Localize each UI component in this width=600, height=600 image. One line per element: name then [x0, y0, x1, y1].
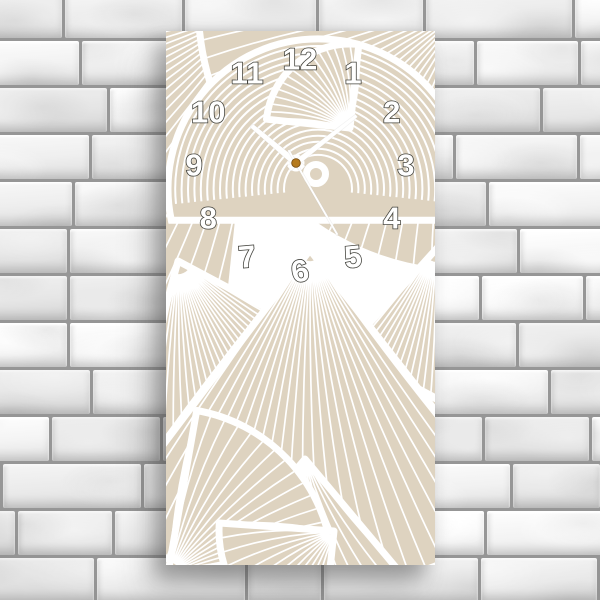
- wall-clock-panel: 121234567891011: [166, 31, 435, 565]
- wall-stone: [75, 182, 181, 226]
- wall-stone: [477, 41, 578, 85]
- clock-numeral-2: 2: [383, 95, 400, 130]
- clock-numeral-1: 1: [344, 56, 361, 91]
- wall-stone: [456, 135, 577, 179]
- wall-stone: [0, 558, 94, 600]
- wall-stone: [3, 464, 141, 508]
- wall-stone: [0, 182, 72, 226]
- wall-stone: [92, 135, 168, 179]
- wall-stone: [575, 0, 600, 38]
- wall-stone: [586, 276, 600, 320]
- wall-stone: [580, 135, 600, 179]
- wall-stone: [0, 370, 90, 414]
- wall-stone: [0, 229, 67, 273]
- clock-numeral-10: 10: [191, 95, 225, 130]
- wall-stone: [0, 323, 67, 367]
- clock-numeral-7: 7: [237, 239, 257, 275]
- wall-stone: [0, 0, 62, 38]
- clock-numeral-12: 12: [283, 42, 317, 77]
- wall-stone: [0, 88, 107, 132]
- wall-stone: [487, 511, 600, 555]
- wall-stone: [519, 323, 600, 367]
- wall-stone: [52, 417, 160, 461]
- wall-stone: [18, 511, 112, 555]
- wall-stone: [426, 0, 572, 38]
- wall-stone: [65, 0, 183, 38]
- product-photo: 121234567891011: [0, 0, 600, 600]
- wall-stone: [592, 417, 600, 461]
- wall-stone: [481, 558, 597, 600]
- wall-stone: [543, 88, 600, 132]
- wall-stone: [482, 276, 583, 320]
- clock-numeral-5: 5: [343, 238, 364, 275]
- clock-numeral-4: 4: [383, 201, 401, 236]
- wall-stone: [0, 417, 49, 461]
- wall-stone: [70, 229, 171, 273]
- wall-stone: [0, 276, 67, 320]
- wall-stone: [551, 370, 600, 414]
- clock-numeral-9: 9: [185, 148, 202, 183]
- wall-stone: [0, 511, 15, 555]
- clock-numeral-3: 3: [397, 148, 414, 183]
- wall-stone: [489, 182, 600, 226]
- pivot-dot: [292, 159, 301, 168]
- wall-stone: [429, 370, 548, 414]
- clock-numeral-11: 11: [231, 56, 264, 91]
- wall-stone: [485, 417, 588, 461]
- wall-stone: [581, 41, 600, 85]
- clock-face: 121234567891011: [166, 31, 435, 565]
- wall-stone: [0, 41, 79, 85]
- wall-stone: [0, 135, 89, 179]
- clock-numeral-8: 8: [200, 201, 217, 236]
- wall-stone: [520, 229, 600, 273]
- wall-stone: [513, 464, 600, 508]
